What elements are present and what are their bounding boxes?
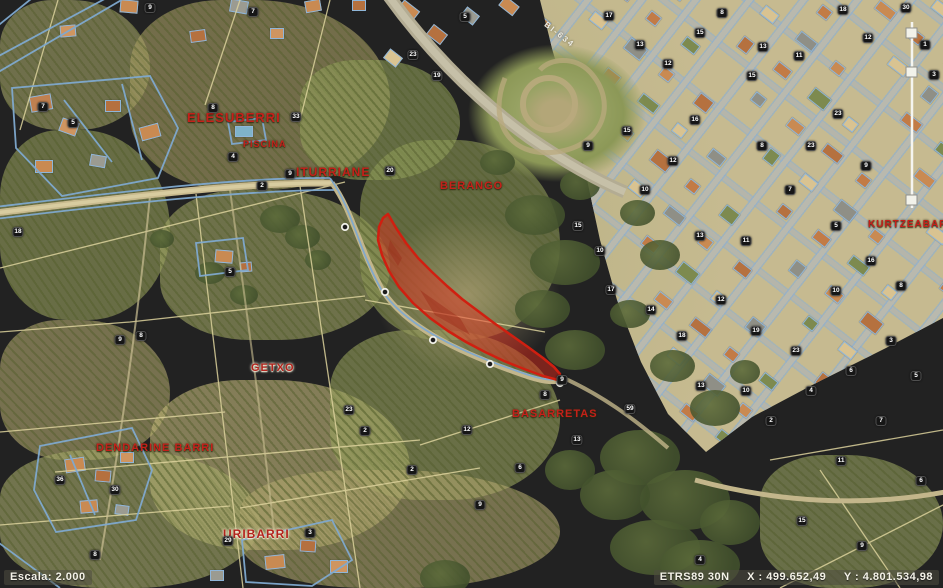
parcel-number-marker: 5 [68,118,79,128]
parcel-number-marker: 23 [407,50,418,60]
parcel-number-marker: 6 [916,476,927,486]
parcel-number-marker: 2 [257,181,268,191]
parcel-number-marker: 7 [785,185,796,195]
parcel-number-marker: 8 [208,103,219,113]
parcel-number-marker: 18 [676,331,687,341]
parcel-number-marker: 14 [645,305,656,315]
scale-indicator: Escala: 2.000 [4,570,92,585]
parcel-number-marker: 12 [715,295,726,305]
parcel-number-marker: 23 [790,346,801,356]
parcel-number-marker: 10 [594,246,605,256]
parcel-number-marker: 13 [694,231,705,241]
parcel-number-marker: 20 [384,166,395,176]
coordinate-readout: ETRS89 30N X : 499.652,49 Y : 4.801.534,… [654,570,939,585]
parcel-number-marker: 9 [557,375,568,385]
parcel-number-marker: 7 [248,7,259,17]
parcel-number-marker: 11 [794,51,805,61]
scale-label: Escala: 2.000 [10,571,86,583]
parcel-number-marker: 15 [694,28,705,38]
parcel-number-layer: 9752319833754292018598363082932322129689… [0,0,943,588]
parcel-number-marker: 7 [876,416,887,426]
parcel-number-marker: 13 [757,42,768,52]
parcel-number-marker: 16 [689,115,700,125]
parcel-number-marker: 18 [12,227,23,237]
parcel-number-marker: 36 [54,475,65,485]
parcel-number-marker: 3 [886,336,897,346]
parcel-number-marker: 4 [228,152,239,162]
parcel-number-marker: 19 [431,71,442,81]
parcel-number-marker: 3 [929,70,940,80]
parcel-number-marker: 5 [225,267,236,277]
parcel-number-marker: 15 [796,516,807,526]
parcel-number-marker: 10 [639,185,650,195]
parcel-number-marker: 16 [865,256,876,266]
parcel-number-marker: 2 [407,465,418,475]
parcel-number-marker: 15 [746,71,757,81]
parcel-number-marker: 5 [831,221,842,231]
parcel-number-marker: 8 [717,8,728,18]
parcel-number-marker: 8 [540,390,551,400]
parcel-number-marker: 2 [360,426,371,436]
parcel-number-marker: 13 [695,381,706,391]
parcel-number-marker: 1 [920,40,931,50]
parcel-number-marker: 19 [750,326,761,336]
parcel-number-marker: 8 [896,281,907,291]
parcel-number-marker: 9 [861,161,872,171]
parcel-number-marker: 10 [740,386,751,396]
parcel-number-marker: 9 [115,335,126,345]
parcel-number-marker: 30 [900,3,911,13]
parcel-number-marker: 17 [605,285,616,295]
parcel-number-marker: 33 [290,112,301,122]
parcel-number-marker: 15 [572,221,583,231]
parcel-number-marker: 12 [461,425,472,435]
parcel-number-marker: 12 [662,59,673,69]
parcel-number-marker: 30 [109,485,120,495]
parcel-number-marker: 8 [90,550,101,560]
parcel-number-marker: 12 [862,33,873,43]
parcel-number-marker: 18 [837,5,848,15]
parcel-number-marker: 11 [836,456,847,466]
parcel-number-marker: 8 [757,141,768,151]
parcel-number-marker: 9 [857,541,868,551]
parcel-number-marker: 9 [145,3,156,13]
parcel-number-marker: 6 [846,366,857,376]
parcel-number-marker: 8 [136,331,147,341]
parcel-number-marker: 23 [832,109,843,119]
parcel-number-marker: 15 [621,126,632,136]
parcel-number-marker: 4 [695,555,706,565]
crs-label: ETRS89 30N [660,571,730,583]
parcel-number-marker: 5 [911,371,922,381]
parcel-number-marker: 17 [603,11,614,21]
parcel-number-marker: 6 [515,463,526,473]
parcel-number-marker: 11 [741,236,752,246]
parcel-number-marker: 23 [343,405,354,415]
parcel-number-marker: 9 [583,141,594,151]
parcel-number-marker: 3 [305,528,316,538]
parcel-number-marker: 9 [475,500,486,510]
parcel-number-marker: 13 [634,40,645,50]
parcel-number-marker: 29 [222,536,233,546]
parcel-number-marker: 59 [624,404,635,414]
parcel-number-marker: 13 [571,435,582,445]
x-coordinate: X : 499.652,49 [747,571,826,583]
parcel-number-marker: 4 [806,386,817,396]
parcel-number-marker: 5 [460,12,471,22]
map-canvas[interactable]: ELESUBERRIPISCINAITURRIANEBERANGOGETXOBA… [0,0,943,588]
y-coordinate: Y : 4.801.534,98 [844,571,933,583]
parcel-number-marker: 10 [830,286,841,296]
parcel-number-marker: 7 [38,102,49,112]
parcel-number-marker: 9 [285,169,296,179]
parcel-number-marker: 12 [667,156,678,166]
parcel-number-marker: 23 [805,141,816,151]
parcel-number-marker: 2 [766,416,777,426]
